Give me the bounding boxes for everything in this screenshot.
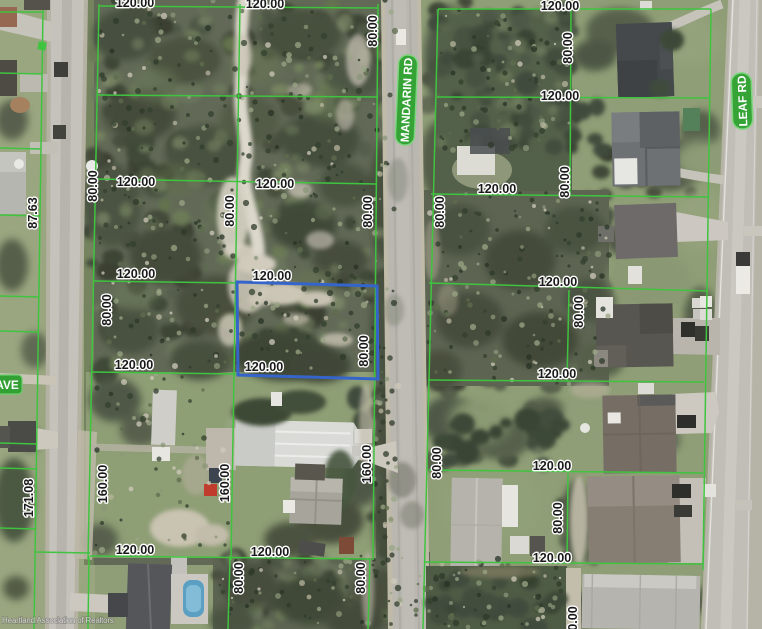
svg-text:LEAF RD: LEAF RD <box>735 75 751 127</box>
svg-text:120.00: 120.00 <box>541 0 580 13</box>
svg-text:120.00: 120.00 <box>116 543 155 557</box>
svg-text:80.00: 80.00 <box>561 32 575 64</box>
svg-text:80.00: 80.00 <box>566 606 580 629</box>
svg-text:120.00: 120.00 <box>539 275 578 289</box>
svg-text:120.00: 120.00 <box>533 551 572 565</box>
svg-text:87.63: 87.63 <box>26 197 40 229</box>
svg-text:80.00: 80.00 <box>366 15 380 47</box>
svg-text:80.00: 80.00 <box>430 447 444 479</box>
svg-text:80.00: 80.00 <box>361 196 375 228</box>
svg-text:120.00: 120.00 <box>251 545 290 559</box>
svg-text:120.00: 120.00 <box>246 0 285 11</box>
svg-text:80.00: 80.00 <box>232 562 246 594</box>
svg-text:120.00: 120.00 <box>253 269 292 283</box>
svg-text:80.00: 80.00 <box>433 196 447 228</box>
svg-text:80.00: 80.00 <box>551 502 565 534</box>
svg-text:120.00: 120.00 <box>245 360 284 374</box>
svg-text:160.00: 160.00 <box>360 445 374 484</box>
svg-text:120.00: 120.00 <box>115 358 154 372</box>
svg-text:120.00: 120.00 <box>533 459 572 473</box>
svg-text:80.00: 80.00 <box>354 562 368 594</box>
svg-text:Heartland Association of Realt: Heartland Association of Realtors <box>2 616 114 625</box>
svg-text:80.00: 80.00 <box>357 335 371 367</box>
svg-text:120.00: 120.00 <box>256 177 295 191</box>
svg-text:80.00: 80.00 <box>572 296 586 328</box>
svg-text:120.00: 120.00 <box>117 175 156 189</box>
svg-text:120.00: 120.00 <box>541 89 580 103</box>
svg-text:120.00: 120.00 <box>116 0 155 10</box>
svg-text:80.00: 80.00 <box>86 170 100 202</box>
svg-text:80.00: 80.00 <box>223 195 237 227</box>
svg-text:80.00: 80.00 <box>100 294 114 326</box>
svg-text:171.08: 171.08 <box>22 479 36 518</box>
svg-text:160.00: 160.00 <box>218 464 232 503</box>
svg-text:120.00: 120.00 <box>478 182 517 196</box>
svg-text:80.00: 80.00 <box>558 166 572 198</box>
svg-text:AVE: AVE <box>0 378 19 392</box>
svg-text:160.00: 160.00 <box>96 465 110 504</box>
svg-text:120.00: 120.00 <box>117 267 156 281</box>
svg-text:120.00: 120.00 <box>538 367 577 381</box>
